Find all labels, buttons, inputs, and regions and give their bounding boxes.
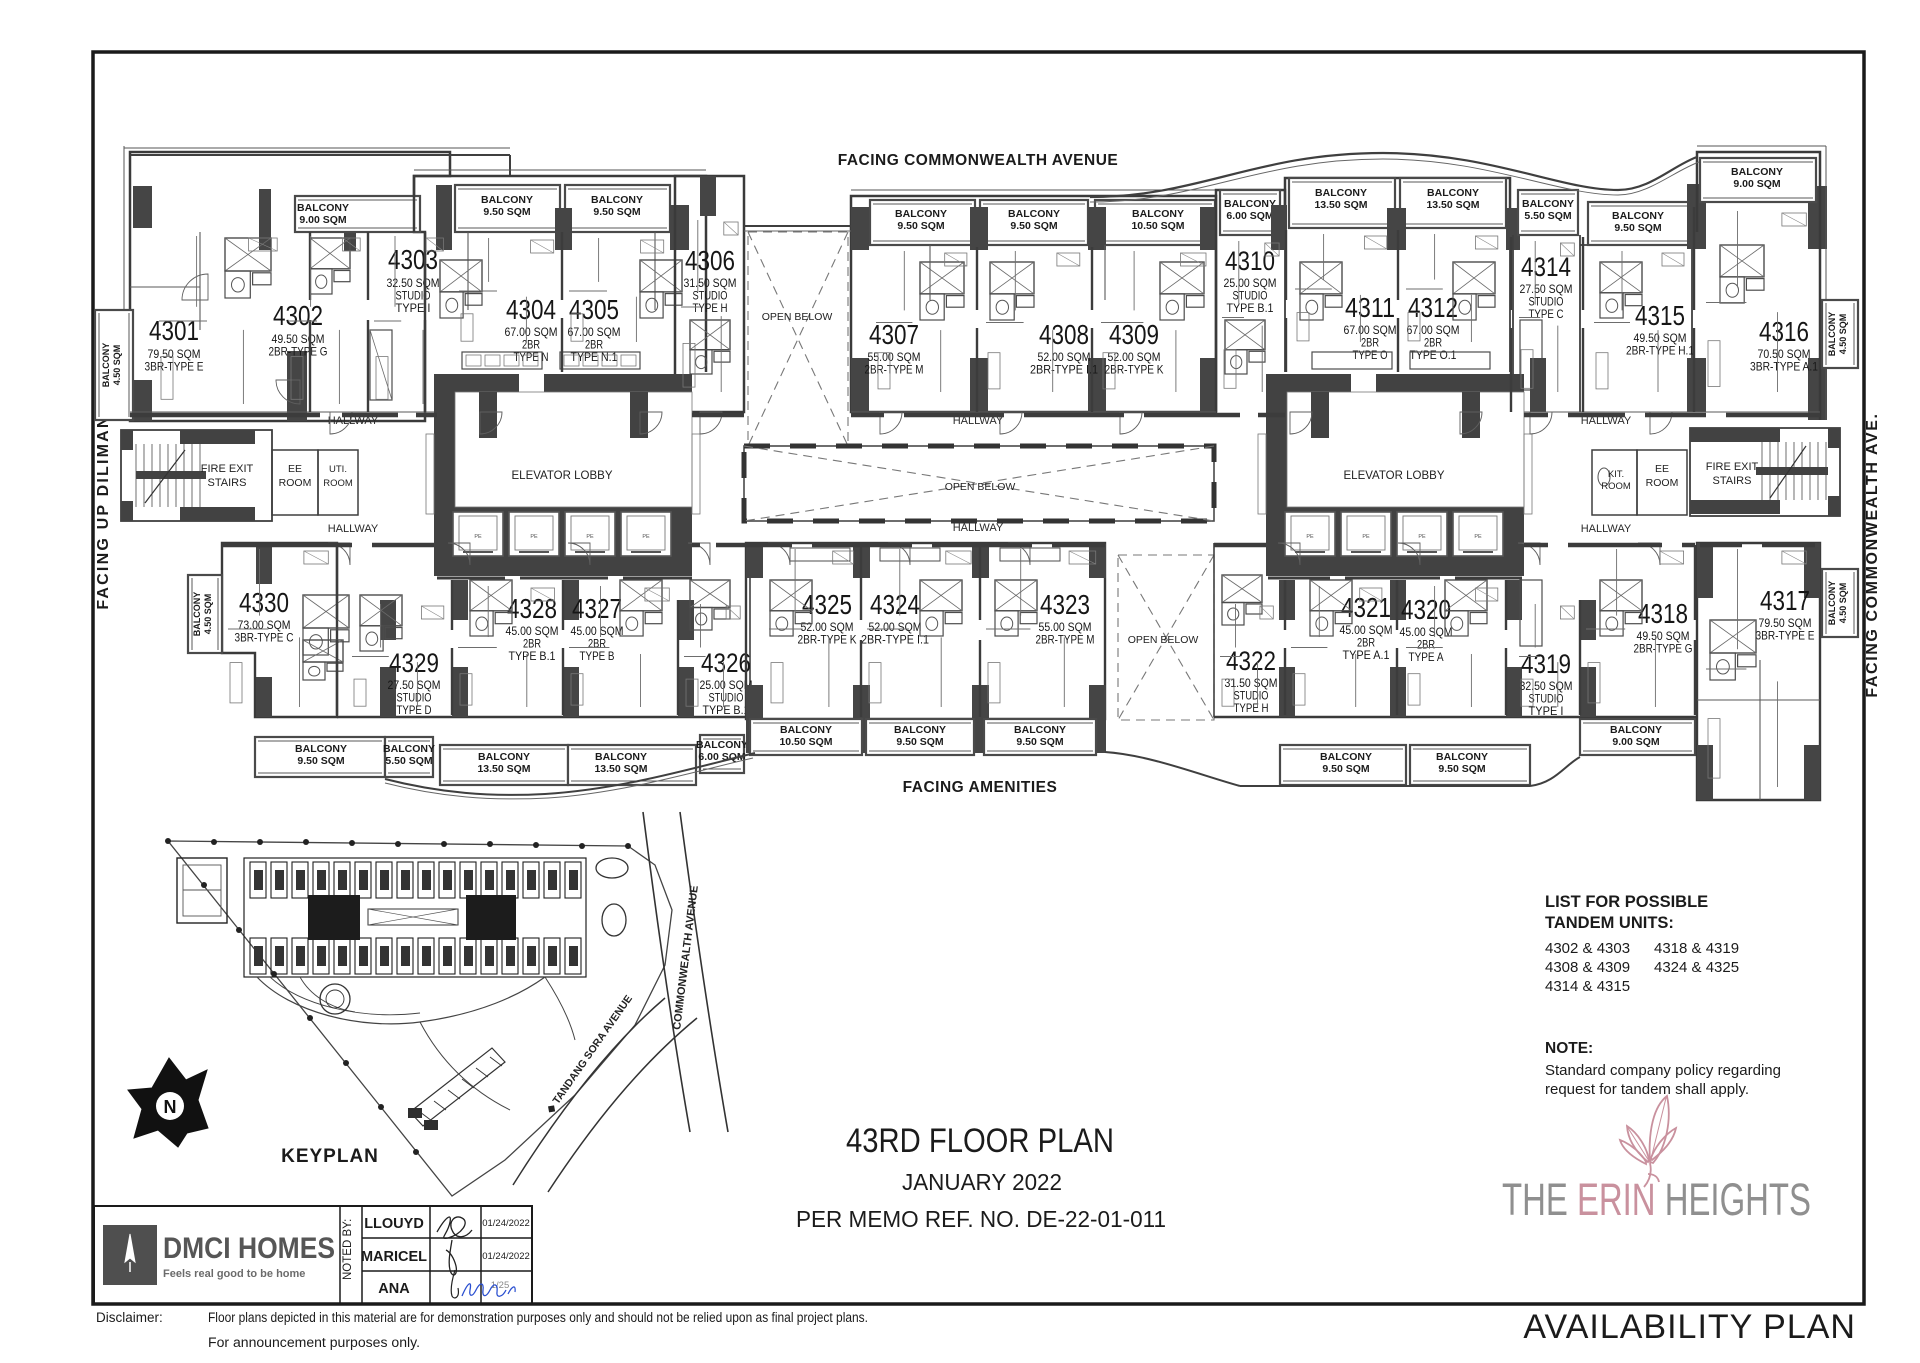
svg-text:3BR-TYPE A.1: 3BR-TYPE A.1 [1750,360,1818,374]
svg-text:PE: PE [1362,534,1370,540]
svg-text:4325: 4325 [802,589,852,620]
svg-text:OPEN BELOW: OPEN BELOW [762,311,833,323]
svg-text:TYPE A.1: TYPE A.1 [1343,648,1390,662]
svg-text:TYPE H: TYPE H [1234,701,1269,715]
svg-text:PE: PE [474,534,482,540]
svg-text:HALLWAY: HALLWAY [328,523,379,535]
svg-text:9.50 SQM: 9.50 SQM [1322,763,1370,775]
svg-text:UTI.: UTI. [329,464,347,475]
svg-text:9.50 SQM: 9.50 SQM [297,755,345,767]
svg-text:13.50 SQM: 13.50 SQM [1426,199,1479,211]
svg-text:43RD FLOOR PLAN: 43RD FLOOR PLAN [846,1122,1114,1160]
svg-text:2BR-TYPE M: 2BR-TYPE M [1036,633,1095,647]
svg-text:4317: 4317 [1760,585,1810,616]
svg-text:BALCONY: BALCONY [383,743,435,755]
svg-text:4329: 4329 [389,648,439,678]
svg-text:5.50 SQM: 5.50 SQM [1524,210,1572,222]
svg-text:PE: PE [1474,534,1482,540]
svg-text:THE ERIN HEIGHTS: THE ERIN HEIGHTS [1502,1174,1811,1225]
svg-text:9.50 SQM: 9.50 SQM [897,220,945,232]
svg-text:LIST FOR POSSIBLE: LIST FOR POSSIBLE [1545,893,1708,911]
svg-text:FACING COMMONWEALTH AVENUE: FACING COMMONWEALTH AVENUE [838,152,1119,169]
svg-text:2BR-TYPE M: 2BR-TYPE M [865,363,924,377]
svg-text:13.50 SQM: 13.50 SQM [594,763,647,775]
svg-text:TYPE H: TYPE H [693,301,728,315]
svg-text:AVAILABILITY PLAN: AVAILABILITY PLAN [1523,1308,1856,1346]
svg-text:4319: 4319 [1521,649,1571,679]
svg-text:BALCONY: BALCONY [595,751,647,763]
svg-text:TYPE A: TYPE A [1409,650,1444,664]
svg-text:TYPE O: TYPE O [1353,348,1388,362]
svg-text:9.00 SQM: 9.00 SQM [1733,178,1781,190]
svg-text:BALCONY: BALCONY [696,739,748,751]
svg-text:ROOM: ROOM [323,478,353,489]
svg-text:OPEN BELOW: OPEN BELOW [1128,634,1199,646]
svg-text:4322: 4322 [1226,646,1276,676]
svg-text:BALCONY: BALCONY [894,724,946,736]
svg-text:4328: 4328 [507,593,557,624]
svg-text:4307: 4307 [869,319,919,350]
svg-text:KEYPLAN: KEYPLAN [281,1146,379,1167]
svg-text:4311: 4311 [1345,292,1395,323]
svg-text:4309: 4309 [1109,319,1159,350]
svg-text:3BR-TYPE C: 3BR-TYPE C [235,631,294,645]
svg-text:ELEVATOR LOBBY: ELEVATOR LOBBY [512,470,613,482]
svg-text:9.50 SQM: 9.50 SQM [1438,763,1486,775]
svg-text:KIT.: KIT. [1608,469,1624,480]
svg-text:01/24/2022: 01/24/2022 [482,1251,530,1262]
svg-text:EE: EE [288,463,302,475]
svg-text:Disclaimer:: Disclaimer: [96,1310,163,1325]
svg-text:4323: 4323 [1040,589,1090,620]
svg-text:FACING UP DILIMAN: FACING UP DILIMAN [95,414,112,609]
svg-text:STAIRS: STAIRS [1713,475,1752,487]
svg-text:4302 & 4303: 4302 & 4303 [1545,940,1630,957]
svg-text:ROOM: ROOM [1601,481,1631,492]
svg-text:BALCONY: BALCONY [1224,198,1276,210]
svg-text:4316: 4316 [1759,316,1809,347]
svg-text:3BR-TYPE E: 3BR-TYPE E [145,360,204,374]
svg-text:BALCONY: BALCONY [1731,166,1783,178]
svg-text:9.50 SQM: 9.50 SQM [1016,736,1064,748]
svg-text:JANUARY 2022: JANUARY 2022 [902,1169,1062,1195]
svg-text:10.50 SQM: 10.50 SQM [1131,220,1184,232]
svg-text:ELEVATOR LOBBY: ELEVATOR LOBBY [1344,470,1445,482]
svg-text:PE: PE [642,534,650,540]
svg-text:FIRE EXIT: FIRE EXIT [1706,461,1759,473]
svg-text:9.50 SQM: 9.50 SQM [1010,220,1058,232]
svg-text:BALCONY: BALCONY [1610,724,1662,736]
svg-text:BALCONY: BALCONY [780,724,832,736]
svg-text:ANA: ANA [378,1281,410,1297]
svg-text:4314: 4314 [1521,252,1571,282]
svg-text:BALCONY: BALCONY [1436,751,1488,763]
svg-text:4.50 SQM: 4.50 SQM [112,345,122,386]
svg-text:4320: 4320 [1401,594,1451,625]
svg-text:4308 & 4309: 4308 & 4309 [1545,959,1630,976]
svg-text:4318: 4318 [1638,598,1688,629]
svg-text:TYPE B.1: TYPE B.1 [1227,301,1274,315]
svg-text:BALCONY: BALCONY [1014,724,1066,736]
svg-text:BALCONY: BALCONY [478,751,530,763]
svg-text:9.00 SQM: 9.00 SQM [299,214,347,226]
svg-text:PE: PE [586,534,594,540]
svg-text:N: N [164,1097,177,1117]
svg-text:STAIRS: STAIRS [208,477,247,489]
svg-text:BALCONY: BALCONY [1827,581,1837,626]
svg-text:HALLWAY: HALLWAY [953,522,1004,534]
svg-text:4327: 4327 [572,593,622,624]
svg-text:PE: PE [1306,534,1314,540]
svg-text:HALLWAY: HALLWAY [1581,523,1632,535]
svg-text:9.50 SQM: 9.50 SQM [1614,222,1662,234]
svg-text:OPEN BELOW: OPEN BELOW [945,481,1016,493]
svg-text:2BR-TYPE K: 2BR-TYPE K [1105,363,1164,377]
svg-text:BALCONY: BALCONY [1008,208,1060,220]
svg-text:9.50 SQM: 9.50 SQM [483,206,531,218]
svg-text:EE: EE [1655,463,1669,475]
svg-text:4.50 SQM: 4.50 SQM [1838,314,1848,355]
svg-text:TYPE B: TYPE B [580,649,615,663]
svg-text:4318 & 4319: 4318 & 4319 [1654,940,1739,957]
svg-text:6.00 SQM: 6.00 SQM [1226,210,1274,222]
svg-text:3BR-TYPE E: 3BR-TYPE E [1756,629,1815,643]
svg-text:BALCONY: BALCONY [1315,187,1367,199]
svg-text:4310: 4310 [1225,246,1275,276]
svg-text:TYPE O.1: TYPE O.1 [1410,348,1457,362]
svg-text:BALCONY: BALCONY [591,194,643,206]
svg-text:BALCONY: BALCONY [192,592,202,637]
svg-text:4305: 4305 [569,294,619,325]
svg-text:BALCONY: BALCONY [481,194,533,206]
svg-text:FIRE EXIT: FIRE EXIT [201,463,254,475]
svg-text:BALCONY: BALCONY [1827,312,1837,357]
svg-text:2BR-TYPE H.1: 2BR-TYPE H.1 [1626,344,1694,358]
svg-text:4304: 4304 [506,294,556,325]
svg-text:2BR-TYPE K: 2BR-TYPE K [798,633,857,647]
svg-text:PER MEMO REF. NO. DE-22-01-011: PER MEMO REF. NO. DE-22-01-011 [796,1206,1166,1232]
svg-text:Standard company policy regard: Standard company policy regarding [1545,1062,1781,1079]
svg-text:4330: 4330 [239,587,289,618]
svg-text:ROOM: ROOM [1646,477,1679,489]
svg-text:NOTE:: NOTE: [1545,1040,1593,1057]
svg-text:request for tandem shall apply: request for tandem shall apply. [1545,1081,1749,1098]
svg-text:MARICEL: MARICEL [361,1249,427,1265]
svg-text:FACING AMENITIES: FACING AMENITIES [903,779,1058,796]
svg-text:4326: 4326 [701,648,751,678]
svg-text:2BR-TYPE I.1: 2BR-TYPE I.1 [861,633,929,647]
svg-text:DMCI HOMES: DMCI HOMES [163,1232,335,1265]
svg-text:TYPE B.1: TYPE B.1 [703,703,750,717]
svg-text:4321: 4321 [1341,592,1391,623]
svg-text:PE: PE [530,534,538,540]
svg-text:5.50 SQM: 5.50 SQM [385,755,433,767]
svg-text:TANDEM UNITS:: TANDEM UNITS: [1545,914,1674,932]
svg-text:9.50 SQM: 9.50 SQM [593,206,641,218]
svg-text:BALCONY: BALCONY [1320,751,1372,763]
svg-text:4.50 SQM: 4.50 SQM [1838,583,1848,624]
svg-text:TYPE D: TYPE D [397,703,432,717]
svg-text:BALCONY: BALCONY [295,743,347,755]
svg-text:Feels real good to be home: Feels real good to be home [163,1268,305,1280]
svg-text:BALCONY: BALCONY [1132,208,1184,220]
svg-text:2BR-TYPE G: 2BR-TYPE G [1634,642,1693,656]
svg-text:Floor plans depicted in this m: Floor plans depicted in this material ar… [208,1310,868,1325]
svg-text:BALCONY: BALCONY [1427,187,1479,199]
svg-text:TYPE B.1: TYPE B.1 [509,649,556,663]
svg-text:ROOM: ROOM [279,477,312,489]
svg-text:4312: 4312 [1408,292,1458,323]
svg-text:TYPE C: TYPE C [1529,307,1564,321]
svg-text:4308: 4308 [1039,319,1089,350]
svg-text:4306: 4306 [685,245,735,276]
svg-text:NOTED BY:: NOTED BY: [342,1219,354,1280]
svg-text:For announcement purposes only: For announcement purposes only. [208,1335,420,1350]
svg-text:4.50 SQM: 4.50 SQM [203,594,213,635]
svg-text:4314 & 4315: 4314 & 4315 [1545,978,1630,995]
svg-text:BALCONY: BALCONY [297,202,349,214]
svg-text:4301: 4301 [149,315,199,346]
svg-text:13.50 SQM: 13.50 SQM [1314,199,1367,211]
svg-text:BALCONY: BALCONY [1612,210,1664,222]
svg-text:PE: PE [1418,534,1426,540]
svg-text:LLOUYD: LLOUYD [364,1216,424,1232]
svg-text:FACING COMMONWEALTH AVE.: FACING COMMONWEALTH AVE. [1864,412,1881,697]
svg-text:4324: 4324 [870,589,920,620]
svg-text:13.50 SQM: 13.50 SQM [477,763,530,775]
svg-text:BALCONY: BALCONY [895,208,947,220]
svg-text:4302: 4302 [273,300,323,331]
svg-text:10.50 SQM: 10.50 SQM [779,736,832,748]
svg-text:2BR-TYPE I.1: 2BR-TYPE I.1 [1030,363,1098,377]
svg-text:4324 & 4325: 4324 & 4325 [1654,959,1739,976]
svg-text:TYPE I: TYPE I [396,301,431,315]
svg-text:9.50 SQM: 9.50 SQM [896,736,944,748]
svg-text:BALCONY: BALCONY [101,343,111,388]
svg-text:9.00 SQM: 9.00 SQM [1612,736,1660,748]
svg-text:4303: 4303 [388,244,438,275]
svg-text:BALCONY: BALCONY [1522,198,1574,210]
svg-text:01/24/2022: 01/24/2022 [482,1218,530,1229]
